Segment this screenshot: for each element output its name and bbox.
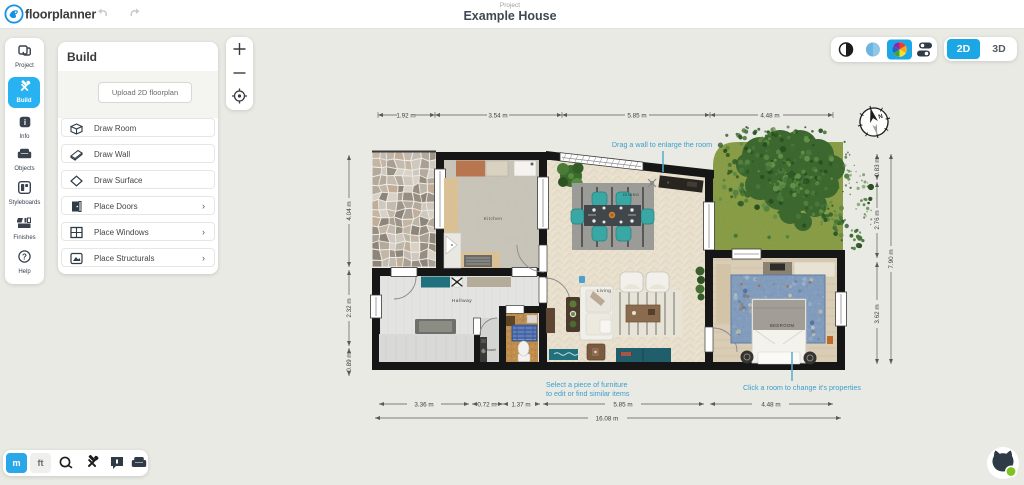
svg-text:Drag a wall to enlarge the roo: Drag a wall to enlarge the room [612, 140, 712, 149]
svg-text:1.37 m: 1.37 m [511, 402, 530, 409]
svg-text:5.85 m: 5.85 m [613, 402, 632, 409]
svg-text:i: i [23, 118, 25, 127]
svg-text:Hallway: Hallway [452, 298, 472, 304]
svg-text:4.04 m: 4.04 m [346, 201, 353, 220]
svg-text:3.62 m: 3.62 m [874, 304, 881, 323]
svg-text:Select a piece of furniture: Select a piece of furniture [546, 380, 628, 389]
svg-text:0.89 m: 0.89 m [346, 352, 353, 371]
svg-text:to edit or find similar items: to edit or find similar items [546, 389, 630, 398]
svg-text:?: ? [22, 252, 27, 261]
svg-text:4.48 m: 4.48 m [761, 402, 780, 409]
svg-text:Kitchen: Kitchen [484, 216, 503, 221]
svg-text:Closet: Closet [484, 347, 496, 352]
svg-text:DINING: DINING [623, 192, 639, 197]
svg-text:Living: Living [597, 288, 611, 293]
svg-text:4.48 m: 4.48 m [760, 113, 779, 120]
svg-text:BEDROOM: BEDROOM [770, 323, 795, 328]
svg-text:Click a room to change it's pr: Click a room to change it's properties [743, 383, 861, 392]
svg-text:3.54 m: 3.54 m [488, 113, 507, 120]
svg-text:16.08 m: 16.08 m [596, 416, 619, 423]
svg-text:floorplanner: floorplanner [25, 8, 96, 22]
svg-text:1.92 m: 1.92 m [396, 113, 415, 120]
svg-text:7.90 m: 7.90 m [888, 249, 895, 268]
svg-text:2.32 m: 2.32 m [346, 298, 353, 317]
svg-text:3.36 m: 3.36 m [414, 402, 433, 409]
svg-text:0.72 m: 0.72 m [477, 402, 496, 409]
svg-text:5.85 m: 5.85 m [627, 113, 646, 120]
svg-text:2.76 m: 2.76 m [874, 210, 881, 229]
svg-text:0.83 m: 0.83 m [874, 157, 881, 176]
